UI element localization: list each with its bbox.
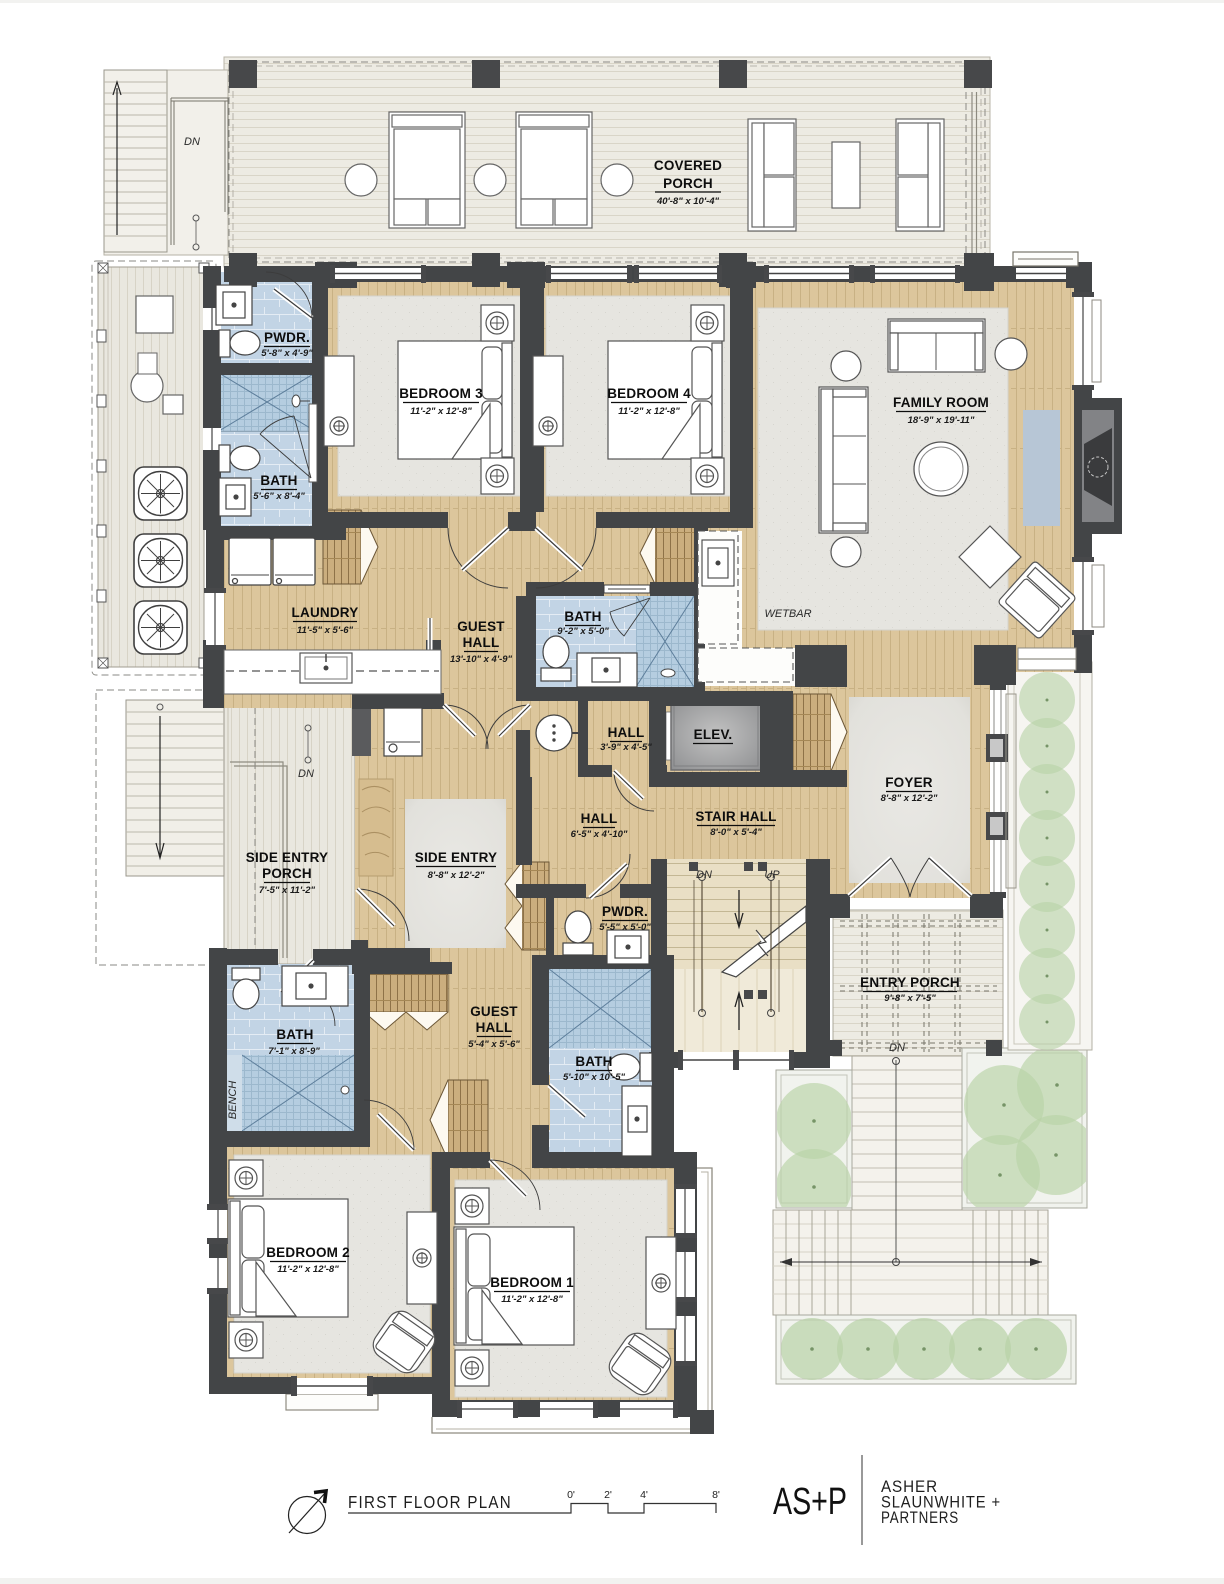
svg-text:13'-10" x 4'-9": 13'-10" x 4'-9" <box>450 654 513 665</box>
svg-text:FIRST FLOOR PLAN: FIRST FLOOR PLAN <box>348 1492 512 1512</box>
svg-text:HALL: HALL <box>581 811 618 826</box>
svg-text:ELEV.: ELEV. <box>694 727 733 742</box>
svg-text:AS+P: AS+P <box>773 1481 847 1523</box>
svg-text:SIDE ENTRY: SIDE ENTRY <box>246 850 329 865</box>
svg-text:BEDROOM 2: BEDROOM 2 <box>266 1245 350 1260</box>
svg-text:8': 8' <box>712 1489 720 1501</box>
svg-text:BENCH: BENCH <box>227 1081 239 1120</box>
svg-text:WETBAR: WETBAR <box>764 608 811 620</box>
svg-text:GUEST: GUEST <box>457 619 505 634</box>
svg-text:BATH: BATH <box>564 609 601 624</box>
svg-text:PWDR.: PWDR. <box>264 330 310 345</box>
svg-text:18'-9" x 19'-11": 18'-9" x 19'-11" <box>908 415 975 426</box>
svg-text:BATH: BATH <box>575 1054 612 1069</box>
svg-text:11'-2" x 12'-8": 11'-2" x 12'-8" <box>618 406 680 417</box>
svg-text:7'-1" x 8'-9": 7'-1" x 8'-9" <box>268 1046 320 1057</box>
svg-text:COVERED: COVERED <box>654 158 722 173</box>
svg-text:5'-10" x 10'-5": 5'-10" x 10'-5" <box>563 1072 626 1083</box>
svg-text:DN: DN <box>696 869 712 881</box>
svg-text:40'-8" x 10'-4": 40'-8" x 10'-4" <box>656 196 720 207</box>
svg-text:DN: DN <box>184 136 200 148</box>
svg-text:8'-8" x 12'-2": 8'-8" x 12'-2" <box>428 870 485 881</box>
svg-text:11'-2" x 12'-8": 11'-2" x 12'-8" <box>501 1294 563 1305</box>
svg-text:11'-2" x 12'-8": 11'-2" x 12'-8" <box>277 1264 339 1275</box>
svg-text:UP: UP <box>764 869 780 881</box>
svg-text:BATH: BATH <box>260 473 297 488</box>
svg-text:9'-2" x 5'-0": 9'-2" x 5'-0" <box>557 626 609 637</box>
svg-text:5'-4" x 5'-6": 5'-4" x 5'-6" <box>468 1039 520 1050</box>
svg-text:DN: DN <box>889 1042 905 1054</box>
svg-text:6'-5" x 4'-10": 6'-5" x 4'-10" <box>571 829 628 840</box>
svg-text:3'-9" x 4'-5": 3'-9" x 4'-5" <box>600 742 652 753</box>
svg-text:5'-5" x 5'-0": 5'-5" x 5'-0" <box>599 922 651 933</box>
svg-text:HALL: HALL <box>476 1020 513 1035</box>
svg-text:11'-2" x 12'-8": 11'-2" x 12'-8" <box>410 406 472 417</box>
svg-text:PORCH: PORCH <box>663 176 713 191</box>
svg-text:5'-8" x 4'-9": 5'-8" x 4'-9" <box>261 348 313 359</box>
svg-text:GUEST: GUEST <box>470 1004 518 1019</box>
svg-text:8'-8" x 12'-2": 8'-8" x 12'-2" <box>881 793 938 804</box>
svg-text:PARTNERS: PARTNERS <box>881 1508 959 1527</box>
svg-text:PORCH: PORCH <box>262 866 312 881</box>
svg-text:FOYER: FOYER <box>885 775 933 790</box>
svg-text:BEDROOM 1: BEDROOM 1 <box>490 1275 574 1290</box>
svg-text:4': 4' <box>640 1489 648 1501</box>
svg-text:BATH: BATH <box>276 1027 313 1042</box>
svg-text:STAIR HALL: STAIR HALL <box>695 809 776 824</box>
svg-text:BEDROOM 3: BEDROOM 3 <box>399 386 483 401</box>
svg-text:FAMILY ROOM: FAMILY ROOM <box>893 395 989 410</box>
svg-text:5'-6" x 8'-4": 5'-6" x 8'-4" <box>253 491 305 502</box>
svg-text:2': 2' <box>604 1489 612 1501</box>
svg-text:BEDROOM 4: BEDROOM 4 <box>607 386 691 401</box>
svg-text:0': 0' <box>567 1489 575 1501</box>
svg-text:SIDE ENTRY: SIDE ENTRY <box>415 850 498 865</box>
svg-text:LAUNDRY: LAUNDRY <box>292 605 359 620</box>
svg-text:HALL: HALL <box>608 725 645 740</box>
svg-text:9'-8" x 7'-5": 9'-8" x 7'-5" <box>884 993 936 1004</box>
svg-text:11'-5" x 5'-6": 11'-5" x 5'-6" <box>297 625 354 636</box>
svg-text:DN: DN <box>298 768 314 780</box>
svg-text:PWDR.: PWDR. <box>602 904 648 919</box>
svg-text:7'-5" x 11'-2": 7'-5" x 11'-2" <box>259 885 316 896</box>
svg-text:HALL: HALL <box>463 635 500 650</box>
svg-text:8'-0" x 5'-4": 8'-0" x 5'-4" <box>710 827 762 838</box>
svg-text:ENTRY PORCH: ENTRY PORCH <box>860 975 960 990</box>
